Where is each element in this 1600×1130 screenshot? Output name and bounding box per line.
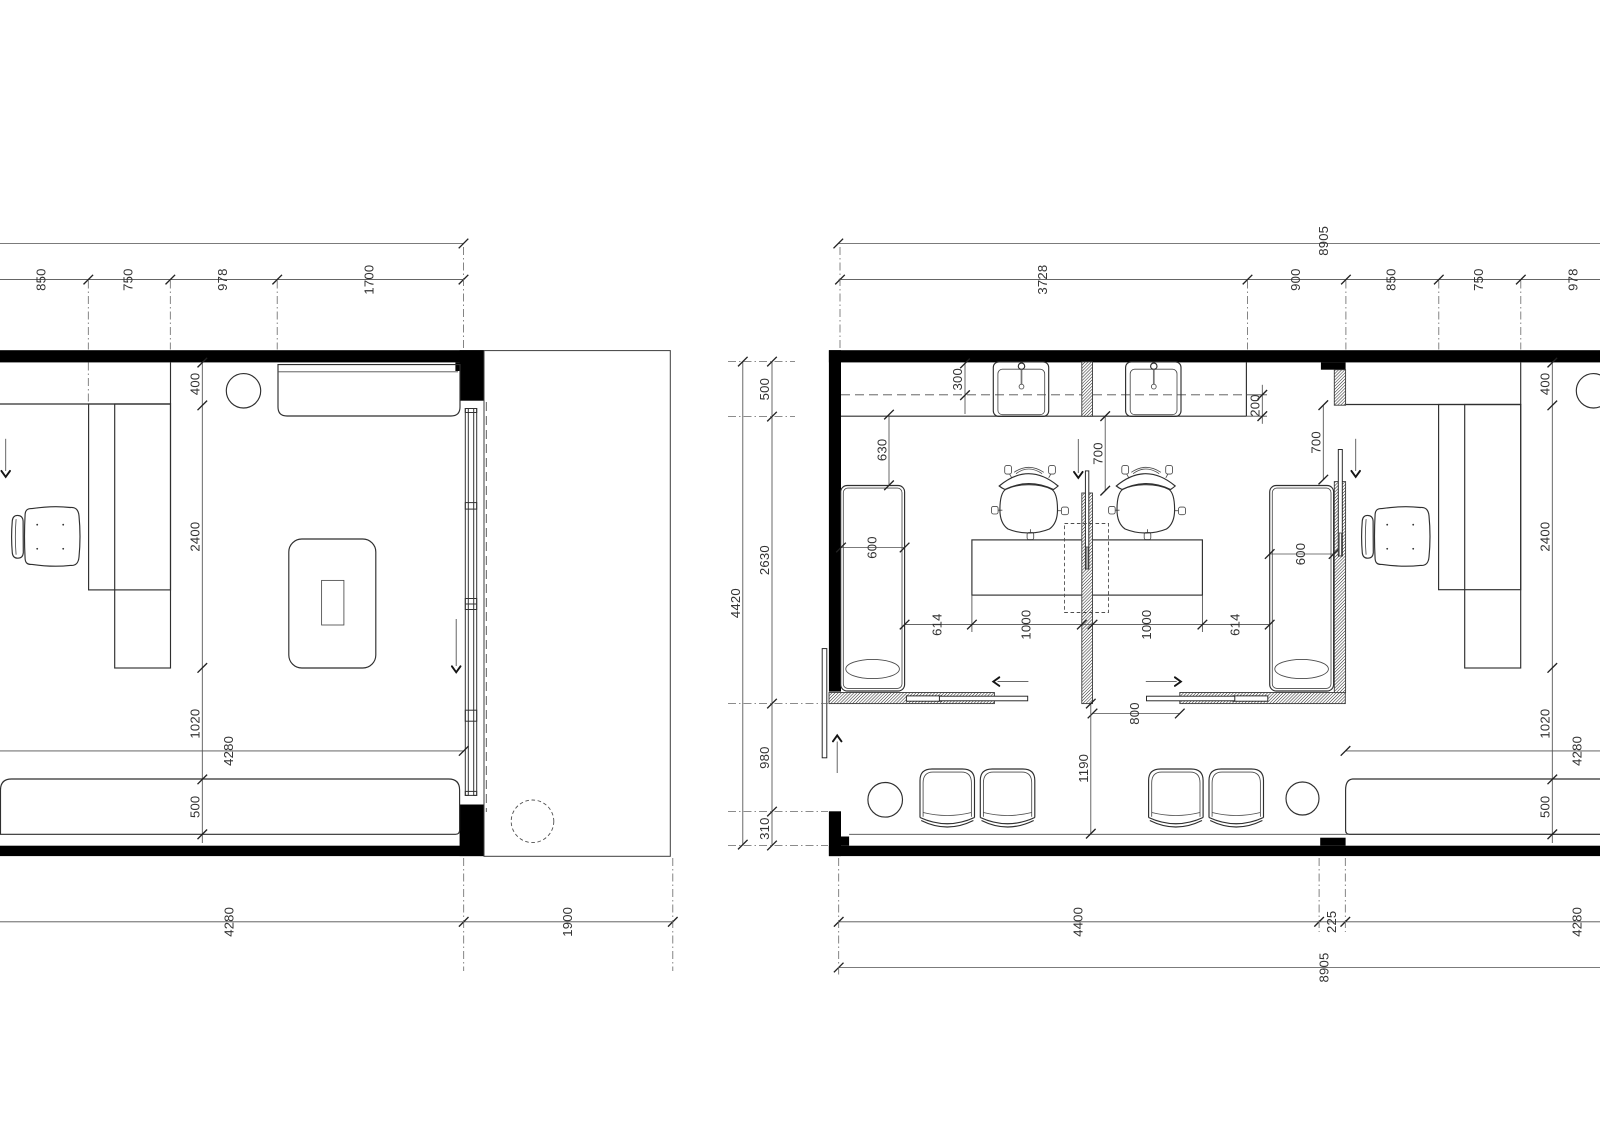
svg-text:200: 200 bbox=[1248, 394, 1263, 416]
svg-text:4420: 4420 bbox=[728, 588, 743, 618]
svg-text:1700: 1700 bbox=[362, 265, 377, 295]
svg-text:600: 600 bbox=[1293, 543, 1308, 565]
svg-text:400: 400 bbox=[1537, 373, 1552, 395]
svg-text:300: 300 bbox=[950, 368, 965, 390]
svg-text:500: 500 bbox=[187, 796, 202, 818]
svg-text:1000: 1000 bbox=[1018, 610, 1033, 640]
svg-text:225: 225 bbox=[1324, 911, 1339, 933]
svg-text:850: 850 bbox=[33, 268, 48, 290]
svg-text:700: 700 bbox=[1090, 442, 1105, 464]
svg-text:8905: 8905 bbox=[1316, 226, 1331, 256]
svg-text:8905: 8905 bbox=[1317, 953, 1332, 983]
svg-text:500: 500 bbox=[757, 378, 772, 400]
svg-text:2400: 2400 bbox=[187, 522, 202, 552]
svg-text:2400: 2400 bbox=[1537, 522, 1552, 552]
svg-text:600: 600 bbox=[864, 536, 879, 558]
svg-text:1900: 1900 bbox=[560, 907, 575, 937]
svg-text:900: 900 bbox=[1288, 268, 1303, 290]
svg-text:4280: 4280 bbox=[1569, 736, 1584, 766]
svg-text:4280: 4280 bbox=[221, 736, 236, 766]
svg-text:310: 310 bbox=[757, 817, 772, 839]
svg-text:980: 980 bbox=[757, 746, 772, 768]
svg-text:978: 978 bbox=[1566, 268, 1581, 290]
svg-text:700: 700 bbox=[1309, 431, 1324, 453]
svg-text:1000: 1000 bbox=[1139, 610, 1154, 640]
svg-text:1020: 1020 bbox=[187, 709, 202, 739]
svg-text:630: 630 bbox=[874, 439, 889, 461]
svg-text:500: 500 bbox=[1537, 796, 1552, 818]
svg-text:1190: 1190 bbox=[1076, 754, 1091, 783]
svg-text:614: 614 bbox=[1227, 613, 1242, 635]
svg-text:614: 614 bbox=[930, 613, 945, 635]
svg-text:1020: 1020 bbox=[1537, 709, 1552, 739]
svg-text:750: 750 bbox=[121, 268, 136, 290]
svg-text:750: 750 bbox=[1471, 268, 1486, 290]
svg-text:4280: 4280 bbox=[1569, 907, 1584, 937]
svg-text:850: 850 bbox=[1384, 268, 1399, 290]
svg-text:800: 800 bbox=[1127, 702, 1142, 724]
svg-text:4280: 4280 bbox=[221, 907, 236, 937]
svg-text:3728: 3728 bbox=[1035, 265, 1050, 295]
svg-text:978: 978 bbox=[215, 268, 230, 290]
svg-text:4400: 4400 bbox=[1071, 907, 1086, 937]
svg-text:2630: 2630 bbox=[757, 545, 772, 575]
svg-text:400: 400 bbox=[187, 373, 202, 395]
